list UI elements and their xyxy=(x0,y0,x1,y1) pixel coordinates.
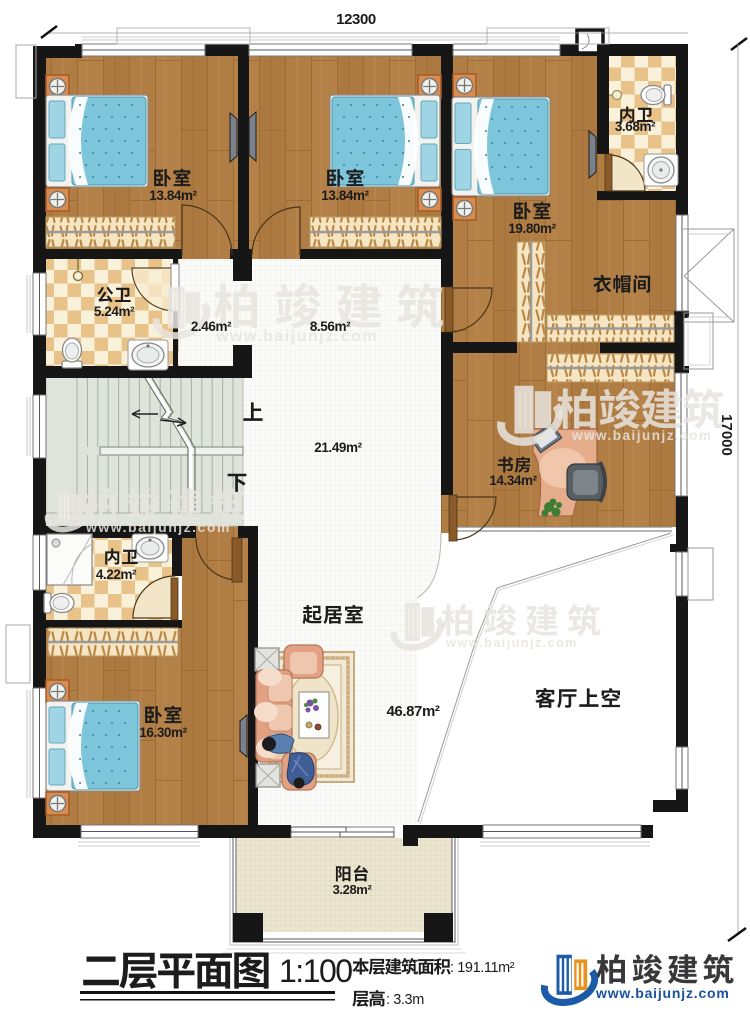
svg-text:5.24m²: 5.24m² xyxy=(94,304,135,319)
svg-text:2.46m²: 2.46m² xyxy=(191,319,232,334)
svg-text:www.baijunjz.com: www.baijunjz.com xyxy=(445,636,578,650)
svg-text:www.baijunjz.com: www.baijunjz.com xyxy=(85,519,231,535)
svg-text:8.56m²: 8.56m² xyxy=(310,319,351,334)
svg-text:3.68m²: 3.68m² xyxy=(615,119,656,134)
svg-text:4.22m²: 4.22m² xyxy=(96,567,137,582)
svg-text:14.34m²: 14.34m² xyxy=(489,473,537,488)
svg-text:3.28m²: 3.28m² xyxy=(333,882,373,897)
svg-text:46.87m²: 46.87m² xyxy=(386,703,439,720)
svg-text:21.49m²: 21.49m² xyxy=(314,440,362,455)
svg-text:: 191.11m²: : 191.11m² xyxy=(450,960,515,976)
svg-text:1:100: 1:100 xyxy=(279,953,352,989)
svg-text:www.baijunjz.com: www.baijunjz.com xyxy=(215,328,378,345)
svg-text:16.30m²: 16.30m² xyxy=(139,725,187,740)
svg-text:12300: 12300 xyxy=(336,11,376,28)
svg-text:17000: 17000 xyxy=(718,414,735,456)
svg-text:: 3.3m: : 3.3m xyxy=(386,992,424,1008)
svg-text:www.baijunjz.com: www.baijunjz.com xyxy=(571,428,713,443)
svg-text:19.80m²: 19.80m² xyxy=(508,221,556,236)
svg-text:www.baijunjz.com: www.baijunjz.com xyxy=(595,985,730,1001)
svg-text:13.84m²: 13.84m² xyxy=(149,188,197,203)
svg-text:13.84m²: 13.84m² xyxy=(321,188,369,203)
